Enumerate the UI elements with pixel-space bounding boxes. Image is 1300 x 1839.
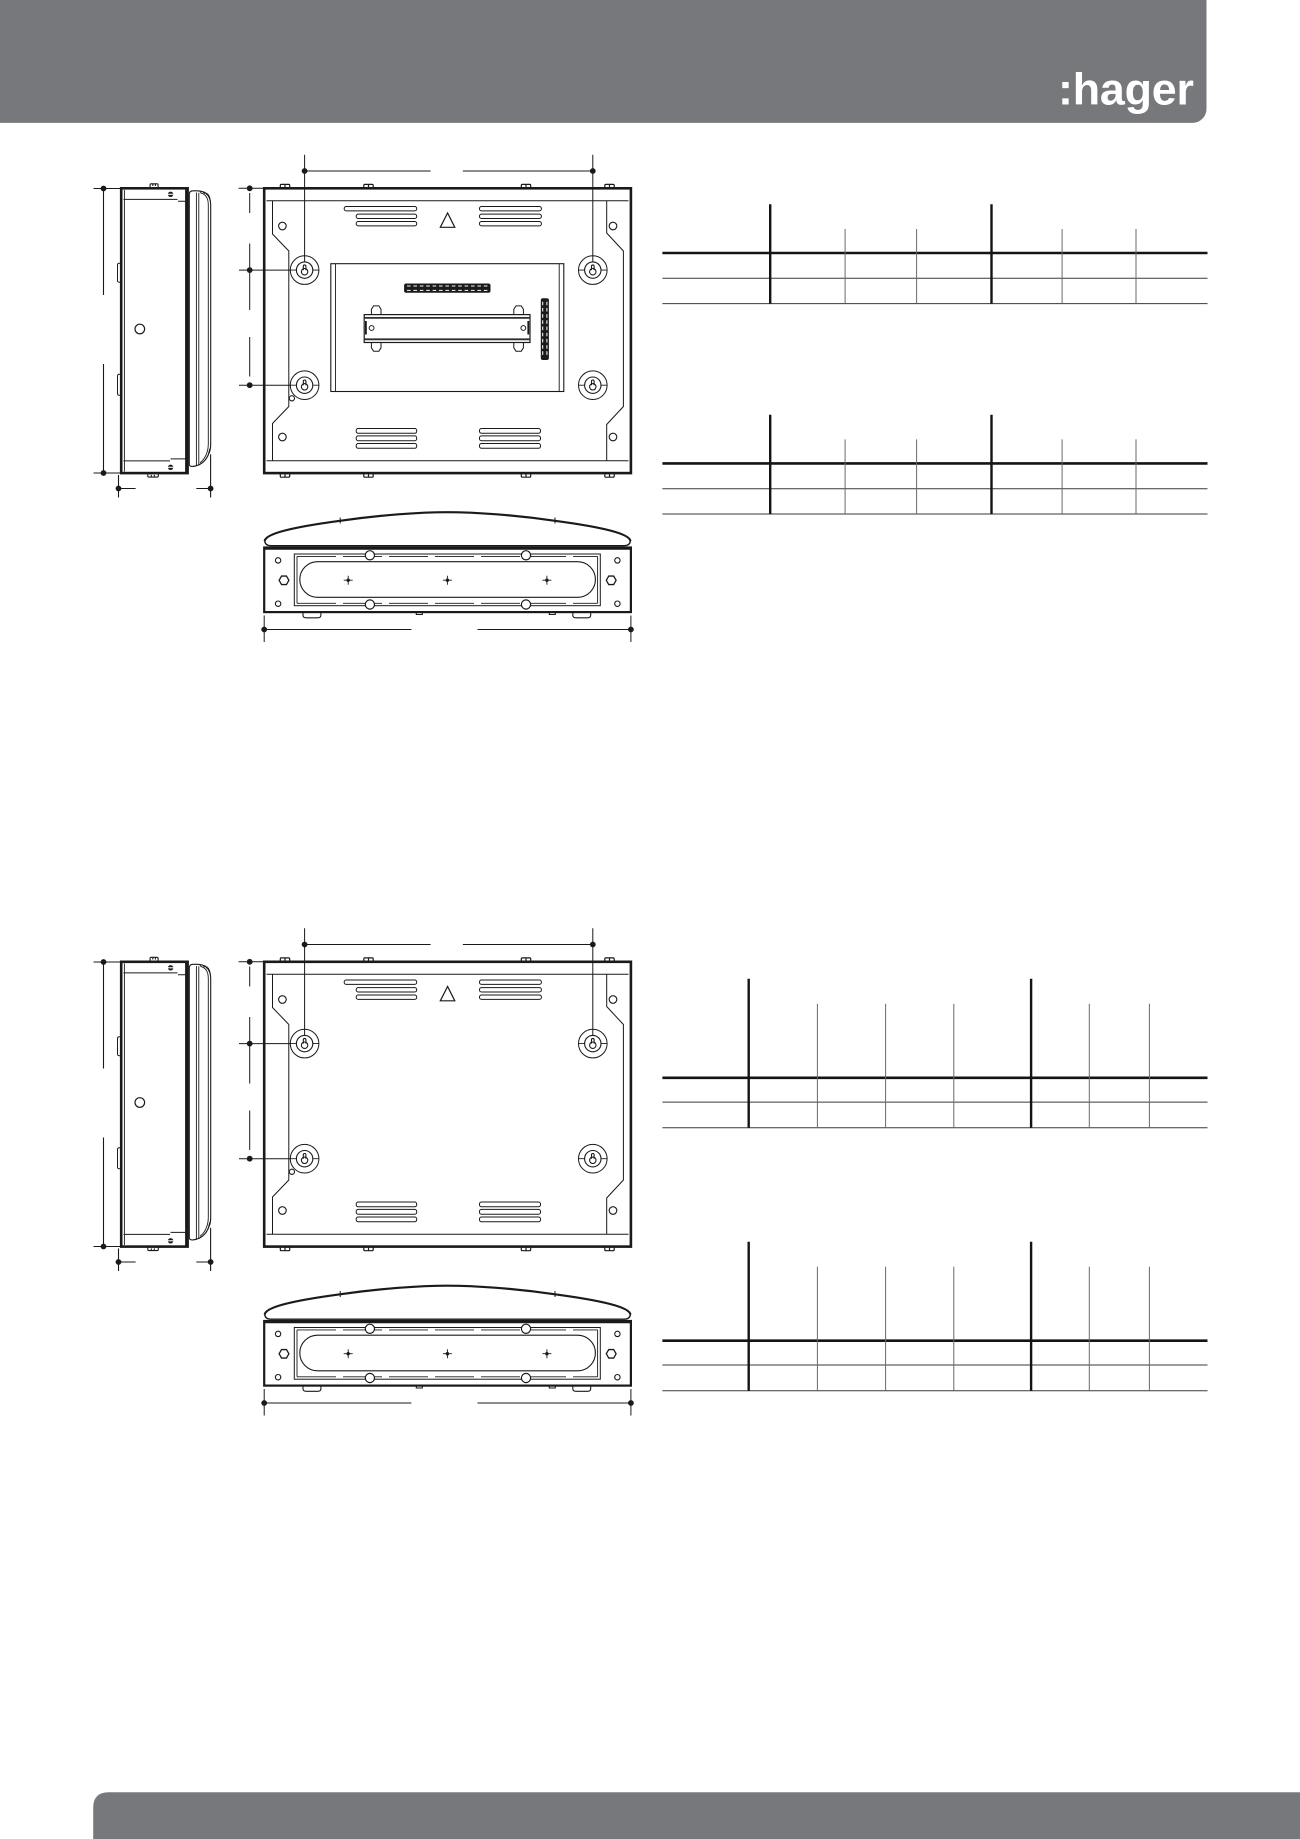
svg-text::hager: :hager xyxy=(1058,65,1194,115)
